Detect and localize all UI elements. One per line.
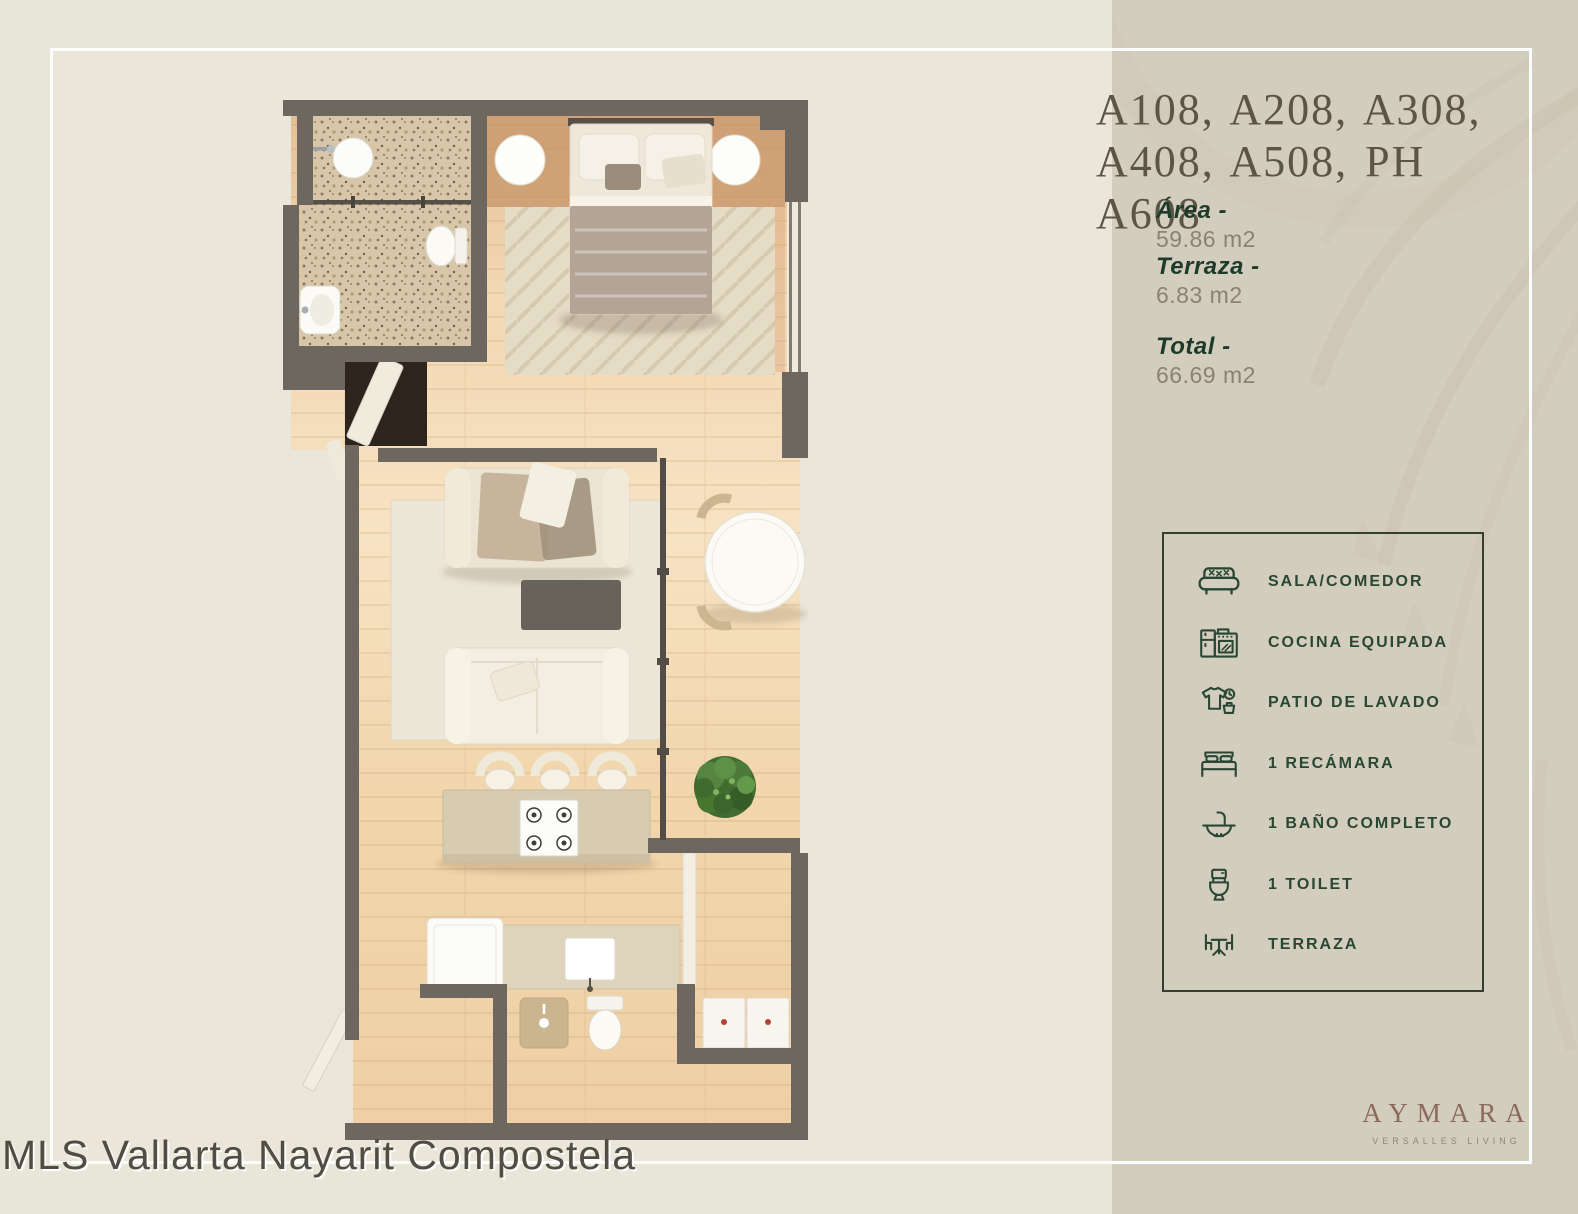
amenity-label: 1 BAÑO COMPLETO <box>1268 815 1453 833</box>
terrace-icon <box>1196 922 1242 968</box>
spec-area-label: Área - <box>1156 197 1260 225</box>
spec-total: Total - 66.69 m2 <box>1156 333 1260 389</box>
amenity-label: PATIO DE LAVADO <box>1268 694 1441 712</box>
plant <box>694 756 756 818</box>
spec-area: Área - 59.86 m2 <box>1156 197 1260 253</box>
spec-area-value: 59.86 m2 <box>1156 225 1260 253</box>
terrace-table <box>705 512 805 612</box>
washing-machine <box>427 918 503 994</box>
sofa-top <box>445 461 629 568</box>
terrace-door-frame <box>683 853 696 987</box>
amenity-label: 1 RECÁMARA <box>1268 755 1395 773</box>
bed-icon <box>1196 741 1242 787</box>
kitchen-icon <box>1196 620 1242 666</box>
brand-name: AYMARA <box>1358 1098 1538 1129</box>
bedroom <box>495 118 803 375</box>
spec-terraza: Terraza - 6.83 m2 <box>1156 253 1260 309</box>
cooktop <box>520 800 578 856</box>
spec-terraza-label: Terraza - <box>1156 253 1260 281</box>
brochure-page: A108, A208, A308, A408, A508, PH A608 Ár… <box>0 0 1578 1214</box>
toilet-wc <box>587 996 623 1050</box>
spec-total-label: Total - <box>1156 333 1260 361</box>
amenity-label: 1 TOILET <box>1268 876 1354 894</box>
floor-plan <box>283 100 808 1140</box>
amenity-cocina: COCINA EQUIPADA <box>1196 620 1472 666</box>
bathroom-sink-icon <box>1196 801 1242 847</box>
unit-title-line1: A108, A208, A308, <box>1096 84 1536 136</box>
bathroom-sink <box>300 286 340 334</box>
amenity-recamara: 1 RECÁMARA <box>1196 741 1472 787</box>
sofa-bottom <box>445 648 629 744</box>
area-specs: Área - 59.86 m2 Terraza - 6.83 m2 Total … <box>1156 197 1260 389</box>
bedroom-balcony-door <box>787 202 803 372</box>
shower-glass <box>313 200 471 205</box>
toilet-icon <box>1196 862 1242 908</box>
amenity-label: TERRAZA <box>1268 936 1358 954</box>
amenity-patio-lavado: PATIO DE LAVADO <box>1196 680 1472 726</box>
amenity-toilet: 1 TOILET <box>1196 862 1472 908</box>
watermark-text: MLS Vallarta Nayarit Compostela <box>2 1132 636 1179</box>
spec-terraza-value: 6.83 m2 <box>1156 281 1260 309</box>
bed <box>568 118 714 314</box>
laundry-icon <box>1196 680 1242 726</box>
brand-logo: AYMARA VERSALLES LIVING <box>1352 1098 1538 1146</box>
living-room <box>391 461 661 744</box>
spec-total-value: 66.69 m2 <box>1156 361 1260 389</box>
brand-tagline: VERSALLES LIVING <box>1355 1136 1538 1146</box>
amenity-terraza: TERRAZA <box>1196 922 1472 968</box>
coffee-table <box>521 580 621 630</box>
amenities-box: SALA/COMEDOR COCINA EQUIPADA <box>1162 532 1484 992</box>
toilet-main-bath <box>426 226 456 266</box>
amenity-sala-comedor: SALA/COMEDOR <box>1196 559 1472 605</box>
amenity-bano: 1 BAÑO COMPLETO <box>1196 801 1472 847</box>
sofa-icon <box>1196 559 1242 605</box>
side-table-left <box>495 135 545 185</box>
side-table-right <box>710 135 760 185</box>
amenity-label: SALA/COMEDOR <box>1268 573 1424 591</box>
amenity-label: COCINA EQUIPADA <box>1268 634 1448 652</box>
shower-drain <box>333 138 373 178</box>
